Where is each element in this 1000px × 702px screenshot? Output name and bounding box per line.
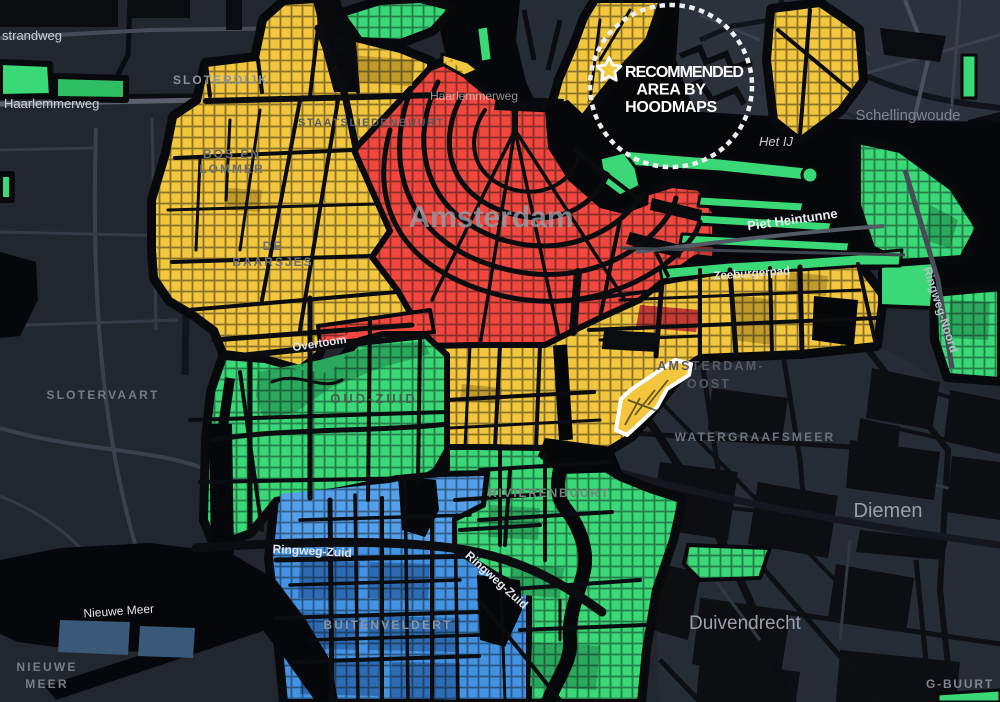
svg-text:BUITENVELDERT: BUITENVELDERT — [323, 618, 452, 632]
svg-text:MEER: MEER — [25, 677, 68, 691]
svg-text:Diemen: Diemen — [854, 500, 923, 522]
svg-text:STAATSLIEDENBUURT: STAATSLIEDENBUURT — [298, 117, 445, 129]
svg-text:OOST: OOST — [687, 377, 731, 391]
svg-text:BOS EN: BOS EN — [203, 147, 261, 161]
svg-text:Schellingwoude: Schellingwoude — [855, 107, 960, 124]
svg-text:BAARSJES: BAARSJES — [232, 255, 313, 269]
svg-text:RIVIERENBUURT: RIVIERENBUURT — [488, 486, 610, 500]
svg-text:Duivendrecht: Duivendrecht — [689, 613, 802, 634]
svg-text:LOMMER: LOMMER — [199, 162, 264, 176]
svg-text:RECOMMENDED: RECOMMENDED — [625, 64, 743, 81]
svg-text:SLOTERVAART: SLOTERVAART — [46, 388, 159, 402]
svg-text:Haarlemmerweg: Haarlemmerweg — [4, 96, 99, 111]
svg-text:AREA BY: AREA BY — [636, 82, 706, 99]
svg-text:G-BUURT: G-BUURT — [926, 677, 994, 691]
svg-text:DE: DE — [263, 239, 284, 253]
svg-text:HOODMAPS: HOODMAPS — [625, 99, 717, 116]
svg-text:WATERGRAAFSMEER: WATERGRAAFSMEER — [675, 430, 836, 444]
svg-text:strandweg: strandweg — [2, 28, 62, 43]
svg-text:Het IJ: Het IJ — [759, 134, 793, 149]
svg-text:SLOTERDIJK: SLOTERDIJK — [173, 73, 269, 87]
svg-text:Amsterdam: Amsterdam — [408, 201, 573, 234]
svg-text:Haarlemmerweg: Haarlemmerweg — [430, 89, 518, 103]
svg-text:AMSTERDAM-: AMSTERDAM- — [657, 359, 764, 373]
svg-text:OUD-ZUID: OUD-ZUID — [330, 391, 418, 406]
svg-text:NIEUWE: NIEUWE — [16, 660, 77, 674]
